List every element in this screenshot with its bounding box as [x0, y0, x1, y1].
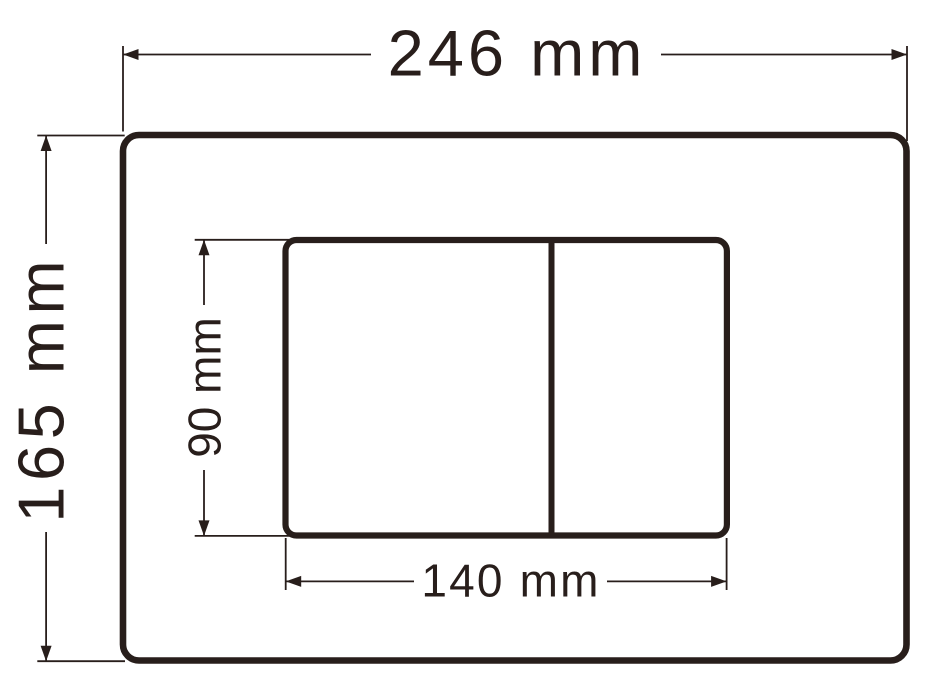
svg-text:140 mm: 140 mm: [421, 555, 600, 607]
svg-text:90 mm: 90 mm: [179, 317, 231, 458]
svg-text:246 mm: 246 mm: [388, 17, 647, 90]
svg-text:165 mm: 165 mm: [5, 255, 78, 523]
